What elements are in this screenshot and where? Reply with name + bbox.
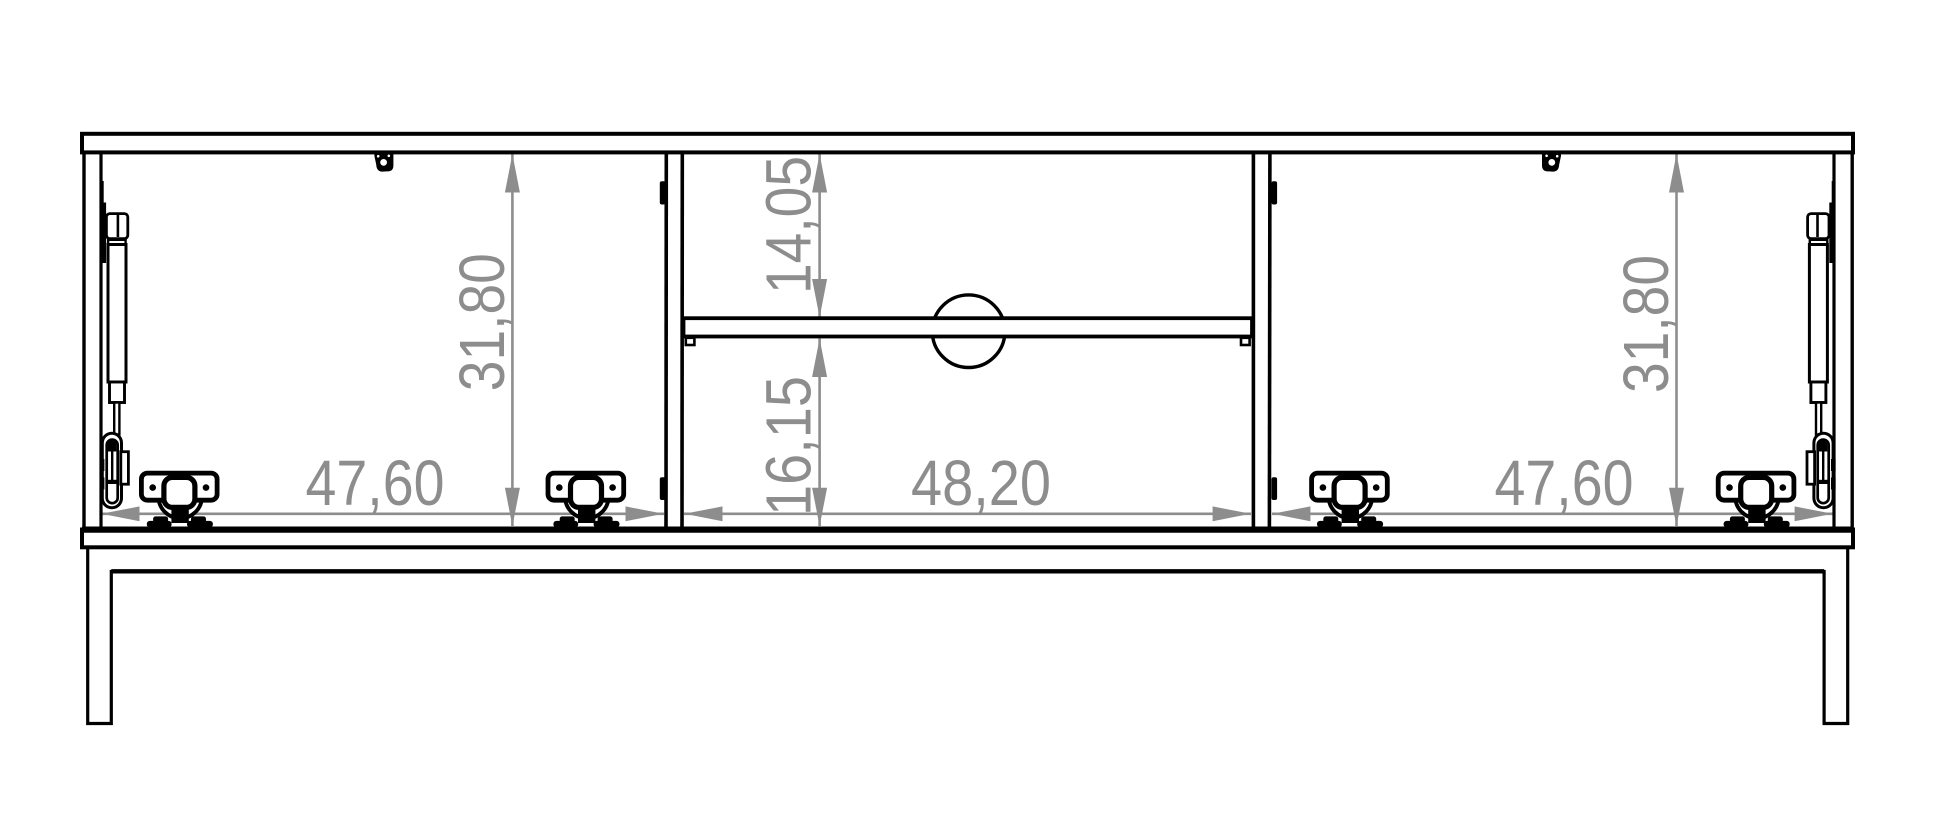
svg-text:47,60: 47,60 [306,447,445,519]
svg-text:47,60: 47,60 [1495,447,1634,519]
svg-text:31,80: 31,80 [446,253,518,391]
svg-text:31,80: 31,80 [1610,255,1682,393]
svg-text:48,20: 48,20 [911,447,1051,519]
svg-text:16,15: 16,15 [753,376,825,516]
svg-text:14,05: 14,05 [753,156,825,294]
